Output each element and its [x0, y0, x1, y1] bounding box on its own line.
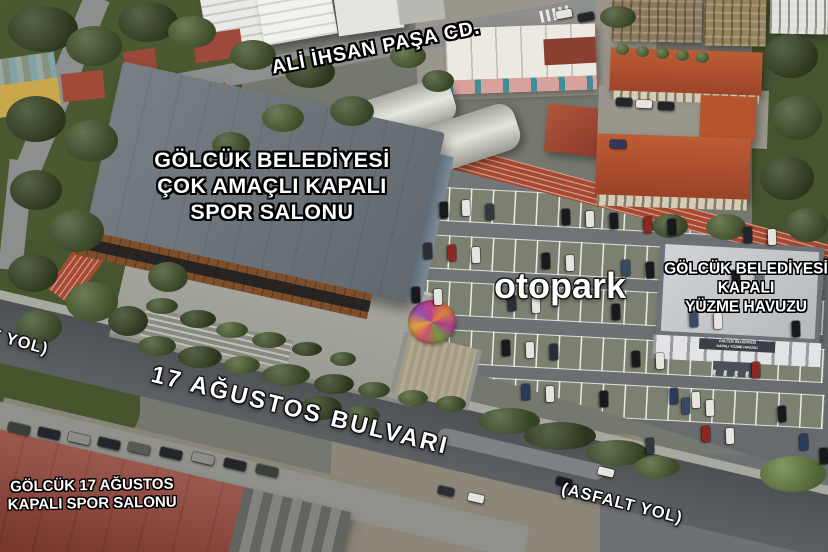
apartment-tower-2	[704, 0, 767, 47]
pool-entrance-canopy	[713, 361, 760, 378]
house-red-2	[61, 70, 106, 102]
label-pool-line1: GÖLCÜK BELEDİYESİ	[664, 260, 828, 279]
apartment-white-right	[770, 0, 828, 35]
pool-facade-sign: GÖLCÜK BELEDİYESİ KAPALI YÜZME HAVUZU	[699, 338, 775, 353]
school-building-north	[609, 47, 762, 96]
building-yellow	[0, 52, 62, 119]
aerial-map-canvas: GÖLCÜK BELEDİYESİ KAPALI YÜZME HAVUZU AL…	[0, 0, 828, 552]
school-building-wing	[699, 95, 757, 141]
label-old-sports-hall-line2: KAPALI SPOR SALONU	[8, 494, 177, 515]
school-building-south	[595, 133, 751, 200]
building-yellow-roof	[0, 52, 57, 87]
label-sports-hall-line3: SPOR SALONU	[154, 199, 389, 225]
label-otopark: otopark	[494, 265, 626, 307]
label-pool-line2: KAPALI	[664, 279, 828, 298]
label-pool-line3: YÜZME HAVUZU	[664, 298, 828, 317]
house-red-4	[544, 103, 603, 156]
label-sports-hall: GÖLCÜK BELEDİYESİ ÇOK AMAÇLI KAPALI SPOR…	[154, 147, 389, 225]
container-red	[543, 37, 596, 66]
apartment-tower-1	[612, 0, 703, 43]
apartment-white-2	[256, 0, 338, 46]
apartment-white-3	[334, 0, 405, 36]
flower-bed	[408, 300, 456, 344]
label-sports-hall-line1: GÖLCÜK BELEDİYESİ	[154, 147, 389, 173]
label-pool: GÖLCÜK BELEDİYESİ KAPALI YÜZME HAVUZU	[664, 260, 828, 317]
label-sports-hall-line2: ÇOK AMAÇLI KAPALI	[154, 173, 389, 199]
label-old-sports-hall: GÖLCÜK 17 AĞUSTOS KAPALI SPOR SALONU	[7, 476, 177, 515]
